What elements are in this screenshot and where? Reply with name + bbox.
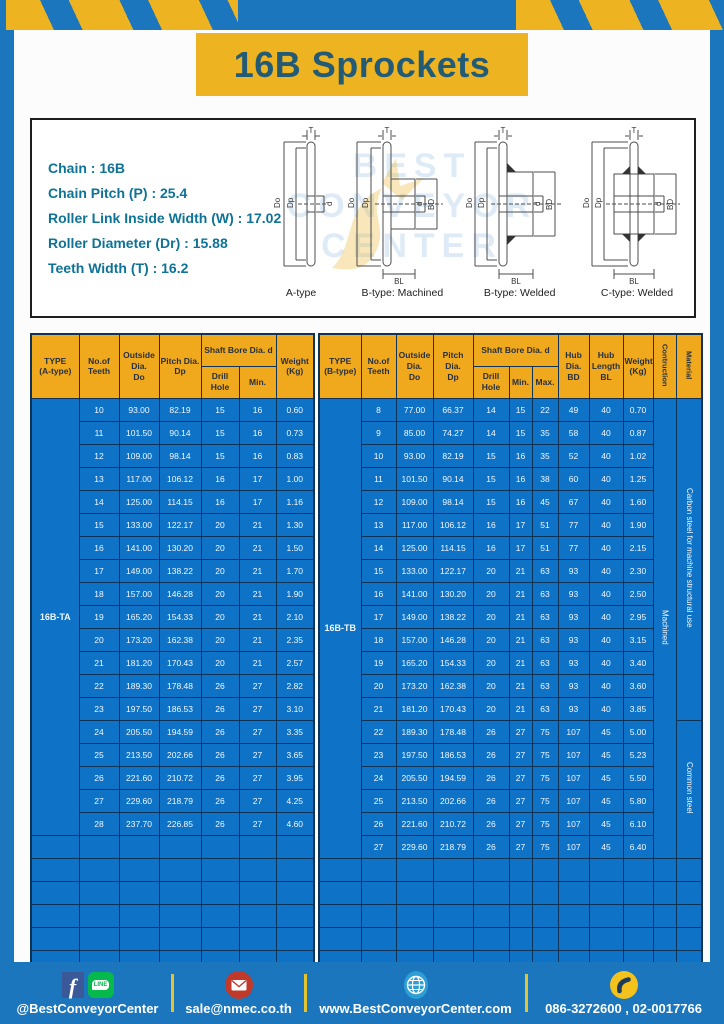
data-cell: 52 (558, 444, 589, 467)
figure-caption: C-type: Welded (601, 287, 673, 299)
data-cell: 27 (509, 835, 532, 858)
line-icon: LINE (88, 972, 114, 998)
page-content: 16B Sprockets BEST CONVEYOR CENTER Chain… (14, 30, 710, 962)
data-cell: 21 (509, 605, 532, 628)
empty-cell (676, 904, 702, 927)
empty-cell (396, 858, 433, 881)
empty-cell (361, 904, 396, 927)
data-cell: 117.00 (396, 513, 433, 536)
col-header-pitch-dia: Pitch Dia. Dp (433, 334, 473, 398)
data-cell: 21 (239, 628, 276, 651)
data-cell: 149.00 (119, 559, 159, 582)
empty-cell (653, 881, 676, 904)
data-cell: 40 (589, 651, 623, 674)
data-cell: 0.87 (623, 421, 653, 444)
data-cell: 16 (509, 490, 532, 513)
table-row: 24205.50194.59262775107455.50 (319, 766, 702, 789)
data-cell: 24 (361, 766, 396, 789)
data-cell: 114.15 (433, 536, 473, 559)
hazard-stripes-left (6, 0, 238, 30)
data-cell: 45 (589, 835, 623, 858)
empty-cell (31, 858, 79, 881)
data-cell: 63 (532, 628, 558, 651)
svg-text:BD: BD (666, 199, 675, 210)
data-cell: 26 (473, 720, 509, 743)
data-cell: 40 (589, 605, 623, 628)
data-cell: 14 (79, 490, 119, 513)
empty-cell (276, 835, 314, 858)
data-cell: 27 (509, 789, 532, 812)
data-cell: 93.00 (396, 444, 433, 467)
empty-cell (589, 927, 623, 950)
data-cell: 27 (361, 835, 396, 858)
data-cell: 181.20 (119, 651, 159, 674)
data-cell: 20 (361, 674, 396, 697)
col-header-hub-dia: Hub Dia. BD (558, 334, 589, 398)
data-cell: 221.60 (396, 812, 433, 835)
empty-cell (396, 927, 433, 950)
empty-cell (31, 881, 79, 904)
col-header-weight: Weight (Kg) (276, 334, 314, 398)
catalog-page: { "page": { "title": "16B Sprockets" }, … (0, 0, 724, 1024)
data-cell: 16 (239, 444, 276, 467)
col-header-shaft-bore: Shaft Bore Dia. d (473, 334, 558, 366)
data-cell: 2.10 (276, 605, 314, 628)
table-row: 1093.0082.1915163552401.02 (319, 444, 702, 467)
data-cell: 12 (79, 444, 119, 467)
empty-cell (558, 858, 589, 881)
empty-cell (509, 881, 532, 904)
data-cell: 14 (473, 398, 509, 421)
empty-row (319, 904, 702, 927)
table-row: 25213.50202.66262775107455.80 (319, 789, 702, 812)
empty-cell (319, 927, 361, 950)
data-cell: 13 (361, 513, 396, 536)
data-cell: 1.60 (623, 490, 653, 513)
data-cell: 26 (473, 766, 509, 789)
data-cell: 35 (532, 421, 558, 444)
empty-cell (79, 858, 119, 881)
empty-cell (159, 858, 201, 881)
svg-text:d: d (415, 202, 424, 206)
a-type-table: TYPE (A-type) No.of Teeth Outside Dia. D… (30, 333, 315, 975)
table-row: 14125.00114.1516175177402.15 (319, 536, 702, 559)
data-cell: 16 (473, 536, 509, 559)
svg-text:BD: BD (545, 199, 554, 210)
data-cell: 218.79 (433, 835, 473, 858)
data-cell: 27 (509, 812, 532, 835)
empty-cell (676, 881, 702, 904)
data-cell: 3.40 (623, 651, 653, 674)
data-cell: 178.48 (433, 720, 473, 743)
data-cell: 165.20 (119, 605, 159, 628)
empty-cell (119, 904, 159, 927)
data-cell: 5.23 (623, 743, 653, 766)
data-cell: 9 (361, 421, 396, 444)
data-cell: 107 (558, 812, 589, 835)
data-cell: 11 (79, 421, 119, 444)
data-cell: 20 (201, 536, 239, 559)
data-cell: 218.79 (159, 789, 201, 812)
svg-text:Dp: Dp (286, 197, 295, 208)
data-cell: 1.02 (623, 444, 653, 467)
empty-cell (396, 881, 433, 904)
empty-cell (558, 881, 589, 904)
b-type-machined-diagram: T Do Dp d BD BL (347, 124, 457, 286)
data-cell: 149.00 (396, 605, 433, 628)
data-cell: 205.50 (119, 720, 159, 743)
empty-cell (159, 881, 201, 904)
data-cell: 40 (589, 398, 623, 421)
data-cell: 40 (589, 421, 623, 444)
col-header-construction: Contruction (653, 334, 676, 398)
data-cell: 45 (589, 720, 623, 743)
data-cell: 25 (361, 789, 396, 812)
data-cell: 20 (79, 628, 119, 651)
data-cell: 75 (532, 835, 558, 858)
empty-row (31, 904, 314, 927)
svg-text:T: T (309, 126, 314, 135)
spec-line: Chain Pitch (P) : 25.4 (48, 181, 281, 206)
page-title: 16B Sprockets (234, 44, 491, 86)
data-cell: 3.95 (276, 766, 314, 789)
data-cell: 93 (558, 628, 589, 651)
top-border (0, 0, 724, 30)
data-cell: 20 (473, 559, 509, 582)
data-cell: 27 (239, 720, 276, 743)
data-cell: 20 (473, 697, 509, 720)
data-cell: 25 (79, 743, 119, 766)
empty-cell (201, 927, 239, 950)
data-cell: 17 (79, 559, 119, 582)
empty-cell (79, 927, 119, 950)
data-cell: 13 (79, 467, 119, 490)
svg-text:BL: BL (629, 277, 639, 286)
data-cell: 63 (532, 582, 558, 605)
data-cell: 3.15 (623, 628, 653, 651)
data-cell: 27 (79, 789, 119, 812)
data-cell: 16 (473, 513, 509, 536)
data-cell: 186.53 (433, 743, 473, 766)
data-cell: 2.35 (276, 628, 314, 651)
data-cell: 16 (201, 490, 239, 513)
b-type-welded-diagram: T Do Dp d BD (465, 124, 575, 286)
data-cell: 26 (201, 743, 239, 766)
empty-cell (532, 858, 558, 881)
data-cell: 75 (532, 743, 558, 766)
empty-cell (79, 904, 119, 927)
data-cell: 21 (361, 697, 396, 720)
data-cell: 210.72 (433, 812, 473, 835)
col-header-shaft-bore: Shaft Bore Dia. d (201, 334, 276, 366)
empty-cell (473, 927, 509, 950)
figure-a-type: T Do Dp d A-type (262, 124, 340, 299)
table-row: 17149.00138.2220216393402.95 (319, 605, 702, 628)
empty-cell (201, 904, 239, 927)
data-cell: 16 (239, 398, 276, 421)
empty-cell (653, 927, 676, 950)
data-cell: 138.22 (433, 605, 473, 628)
data-cell: 10 (361, 444, 396, 467)
data-cell: 77.00 (396, 398, 433, 421)
data-cell: 26 (201, 674, 239, 697)
data-cell: 8 (361, 398, 396, 421)
col-header-min: Min. (509, 366, 532, 398)
empty-cell (473, 881, 509, 904)
data-cell: 27 (239, 743, 276, 766)
data-cell: 114.15 (159, 490, 201, 513)
data-cell: 26 (201, 697, 239, 720)
data-cell: 205.50 (396, 766, 433, 789)
data-cell: 0.73 (276, 421, 314, 444)
footer-phone: 086-3272600 , 02-0017766 (528, 971, 720, 1016)
mail-icon (224, 970, 254, 1000)
spec-line: Roller Diameter (Dr) : 15.88 (48, 231, 281, 256)
data-cell: 18 (361, 628, 396, 651)
facebook-icon: f (62, 972, 84, 998)
empty-cell (276, 927, 314, 950)
data-cell: 197.50 (119, 697, 159, 720)
data-cell: 51 (532, 513, 558, 536)
data-cell: 122.17 (433, 559, 473, 582)
data-cell: 15 (79, 513, 119, 536)
data-cell: 141.00 (119, 536, 159, 559)
data-cell: 26 (473, 812, 509, 835)
chain-specs: Chain : 16B Chain Pitch (P) : 25.4 Rolle… (48, 156, 281, 281)
table-row: 19165.20154.3320216393403.40 (319, 651, 702, 674)
data-cell: 66.37 (433, 398, 473, 421)
data-cell: 0.83 (276, 444, 314, 467)
data-cell: 20 (473, 582, 509, 605)
table-row: 11101.5090.1415163860401.25 (319, 467, 702, 490)
footer-social: f LINE @BestConveyorCenter (5, 971, 171, 1016)
spec-line: Teeth Width (T) : 16.2 (48, 256, 281, 281)
col-header-drill-hole: Drill Hole (473, 366, 509, 398)
data-cell: 107 (558, 743, 589, 766)
data-cell: 93 (558, 697, 589, 720)
data-cell: 75 (532, 720, 558, 743)
data-cell: 45 (589, 743, 623, 766)
data-cell: 1.90 (623, 513, 653, 536)
page-title-banner: 16B Sprockets (196, 33, 528, 96)
b-type-table: TYPE (B-type) No.of Teeth Outside Dia. D… (318, 333, 703, 975)
data-cell: 133.00 (119, 513, 159, 536)
data-cell: 27 (239, 674, 276, 697)
col-header-material: Material (676, 334, 702, 398)
data-cell: 170.43 (433, 697, 473, 720)
data-cell: 26 (79, 766, 119, 789)
empty-cell (239, 858, 276, 881)
data-cell: 20 (201, 628, 239, 651)
data-cell: 1.90 (276, 582, 314, 605)
data-cell: 173.20 (119, 628, 159, 651)
empty-cell (276, 881, 314, 904)
data-cell: 12 (361, 490, 396, 513)
data-cell: 197.50 (396, 743, 433, 766)
data-cell: 20 (473, 605, 509, 628)
footer-contact-bar: f LINE @BestConveyorCenter sale@nmec.co.… (0, 962, 724, 1024)
data-cell: 40 (589, 444, 623, 467)
figure-b-type-machined: T Do Dp d BD BL (347, 124, 457, 299)
data-cell: 21 (509, 674, 532, 697)
data-cell: 20 (201, 605, 239, 628)
data-cell: 165.20 (396, 651, 433, 674)
data-cell: 202.66 (433, 789, 473, 812)
data-cell: 133.00 (396, 559, 433, 582)
data-cell: 173.20 (396, 674, 433, 697)
data-cell: 21 (79, 651, 119, 674)
data-cell: 23 (79, 697, 119, 720)
data-cell: 22 (532, 398, 558, 421)
svg-text:BL: BL (511, 277, 521, 286)
table-row: 20173.20162.3820216393403.60 (319, 674, 702, 697)
data-cell: 27 (239, 812, 276, 835)
empty-row (31, 927, 314, 950)
data-cell: 75 (532, 789, 558, 812)
data-cell: 40 (589, 582, 623, 605)
type-cell: 16B-TA (31, 398, 79, 835)
data-cell: 45 (532, 490, 558, 513)
data-cell: 15 (201, 398, 239, 421)
data-cell: 107 (558, 766, 589, 789)
svg-text:T: T (500, 126, 505, 135)
col-header-min: Min. (239, 366, 276, 398)
material-cell: Common steel (676, 720, 702, 858)
figure-caption: B-type: Machined (361, 287, 443, 299)
data-cell: 22 (361, 720, 396, 743)
data-cell: 130.20 (433, 582, 473, 605)
footer-website: www.BestConveyorCenter.com (307, 971, 525, 1016)
data-cell: 229.60 (396, 835, 433, 858)
construction-cell: Machined (653, 398, 676, 858)
data-cell: 58 (558, 421, 589, 444)
data-cell: 40 (589, 697, 623, 720)
data-cell: 1.70 (276, 559, 314, 582)
data-cell: 14 (361, 536, 396, 559)
data-cell: 157.00 (119, 582, 159, 605)
svg-text:Do: Do (273, 197, 282, 208)
empty-cell (589, 858, 623, 881)
data-cell: 49 (558, 398, 589, 421)
svg-text:Dp: Dp (361, 197, 370, 208)
data-cell: 40 (589, 490, 623, 513)
data-cell: 63 (532, 651, 558, 674)
data-cell: 1.25 (623, 467, 653, 490)
data-cell: 40 (589, 467, 623, 490)
table-row: 21181.20170.4320216393403.85 (319, 697, 702, 720)
footer-phone-numbers: 086-3272600 , 02-0017766 (545, 1001, 702, 1016)
col-header-outside-dia: Outside Dia. Do (396, 334, 433, 398)
data-cell: 74.27 (433, 421, 473, 444)
data-cell: 90.14 (433, 467, 473, 490)
data-cell: 221.60 (119, 766, 159, 789)
data-cell: 16 (201, 467, 239, 490)
data-cell: 2.30 (623, 559, 653, 582)
data-cell: 15 (473, 490, 509, 513)
data-cell: 21 (509, 651, 532, 674)
svg-text:Dp: Dp (594, 197, 603, 208)
data-cell: 117.00 (119, 467, 159, 490)
data-cell: 106.12 (433, 513, 473, 536)
empty-cell (558, 927, 589, 950)
data-cell: 4.60 (276, 812, 314, 835)
empty-cell (433, 904, 473, 927)
data-cell: 16 (79, 536, 119, 559)
empty-cell (558, 904, 589, 927)
data-cell: 45 (589, 812, 623, 835)
data-cell: 20 (201, 513, 239, 536)
empty-cell (532, 927, 558, 950)
col-header-max: Max. (532, 366, 558, 398)
data-cell: 10 (79, 398, 119, 421)
data-cell: 16 (509, 444, 532, 467)
table-row: 16141.00130.2020216393402.50 (319, 582, 702, 605)
empty-cell (509, 927, 532, 950)
empty-cell (623, 881, 653, 904)
data-cell: 5.50 (623, 766, 653, 789)
table-row: 985.0074.2714153558400.87 (319, 421, 702, 444)
empty-cell (159, 835, 201, 858)
data-cell: 27 (509, 720, 532, 743)
data-cell: 51 (532, 536, 558, 559)
spec-diagram-box: BEST CONVEYOR CENTER Chain : 16B Chain P… (30, 118, 696, 318)
data-cell: 1.00 (276, 467, 314, 490)
table-row: 16B-TB877.0066.3714152249400.70MachinedC… (319, 398, 702, 421)
col-header-pitch-dia: Pitch Dia. Dp (159, 334, 201, 398)
globe-icon (401, 970, 431, 1000)
data-cell: 98.14 (159, 444, 201, 467)
data-cell: 20 (473, 651, 509, 674)
table-row: 13117.00106.1216175177401.90 (319, 513, 702, 536)
data-cell: 162.38 (433, 674, 473, 697)
data-cell: 20 (201, 559, 239, 582)
empty-cell (201, 835, 239, 858)
data-cell: 109.00 (119, 444, 159, 467)
data-cell: 178.48 (159, 674, 201, 697)
col-header-hub-length: Hub Length BL (589, 334, 623, 398)
empty-row (31, 858, 314, 881)
empty-row (31, 835, 314, 858)
data-cell: 109.00 (396, 490, 433, 513)
footer-email: sale@nmec.co.th (174, 971, 304, 1016)
type-cell: 16B-TB (319, 398, 361, 858)
data-cell: 154.33 (433, 651, 473, 674)
svg-text:T: T (632, 126, 637, 135)
data-cell: 2.50 (623, 582, 653, 605)
col-header-type: TYPE (B-type) (319, 334, 361, 398)
empty-cell (653, 858, 676, 881)
data-cell: 21 (239, 651, 276, 674)
data-cell: 63 (532, 559, 558, 582)
material-cell: Carbon steel for machine structural use (676, 398, 702, 720)
data-cell: 15 (473, 444, 509, 467)
col-header-outside-dia: Outside Dia. Do (119, 334, 159, 398)
data-cell: 210.72 (159, 766, 201, 789)
data-cell: 186.53 (159, 697, 201, 720)
empty-cell (31, 927, 79, 950)
footer-website-url: www.BestConveyorCenter.com (319, 1001, 511, 1016)
table-row: 12109.0098.1415164567401.60 (319, 490, 702, 513)
data-cell: 213.50 (396, 789, 433, 812)
empty-cell (433, 858, 473, 881)
empty-cell (319, 904, 361, 927)
table-row: 22189.30178.48262775107455.00Common stee… (319, 720, 702, 743)
data-cell: 21 (239, 605, 276, 628)
empty-cell (433, 881, 473, 904)
data-cell: 3.85 (623, 697, 653, 720)
empty-cell (473, 858, 509, 881)
figure-caption: A-type (286, 287, 316, 299)
